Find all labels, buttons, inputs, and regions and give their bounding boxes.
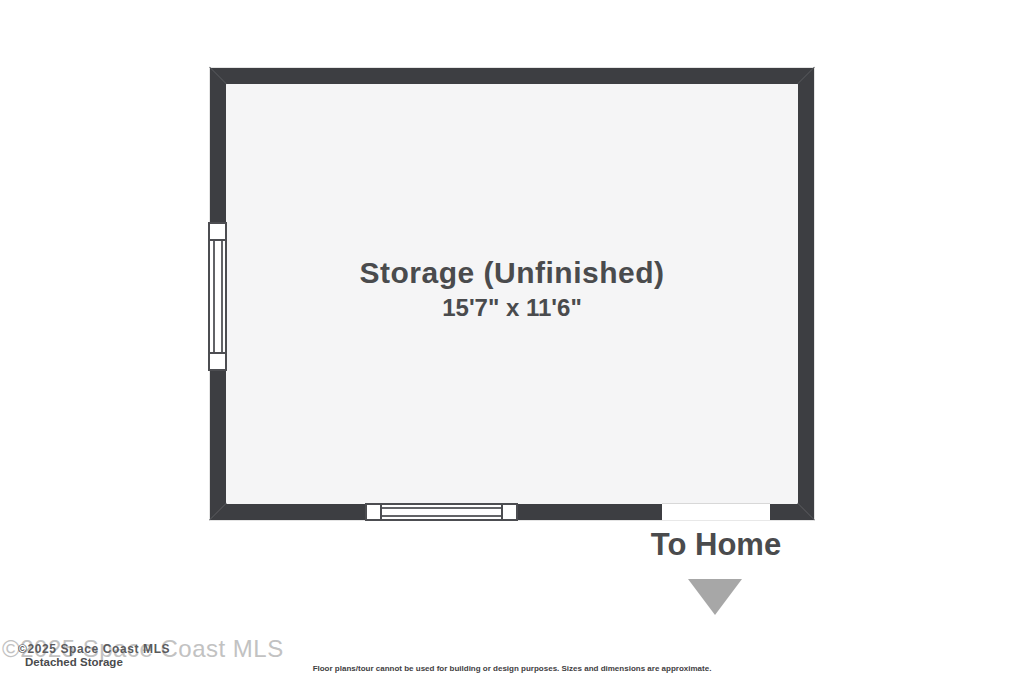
window-glass-lines [213, 241, 223, 352]
floorplan-canvas: Storage (Unfinished) 15'7" x 11'6" To Ho… [0, 0, 1024, 683]
window-frame-cap [210, 352, 225, 369]
room-name-label: Storage (Unfinished) [226, 256, 798, 290]
room-dimensions-label: 15'7" x 11'6" [226, 294, 798, 322]
window-frame-cap [501, 505, 516, 519]
doorway-to-home-opening [662, 503, 770, 521]
mls-watermark-small: ©2025 Space Coast MLS [18, 642, 170, 656]
window-glass-lines [382, 507, 501, 517]
window-bottom-icon [365, 503, 518, 521]
down-arrow-icon [688, 579, 742, 615]
window-left-icon [208, 222, 227, 371]
disclaimer-text: Floor plans/tour cannot be used for buil… [0, 664, 1024, 673]
window-frame-cap [210, 224, 225, 241]
window-frame-cap [367, 505, 382, 519]
to-home-label: To Home [616, 527, 816, 563]
